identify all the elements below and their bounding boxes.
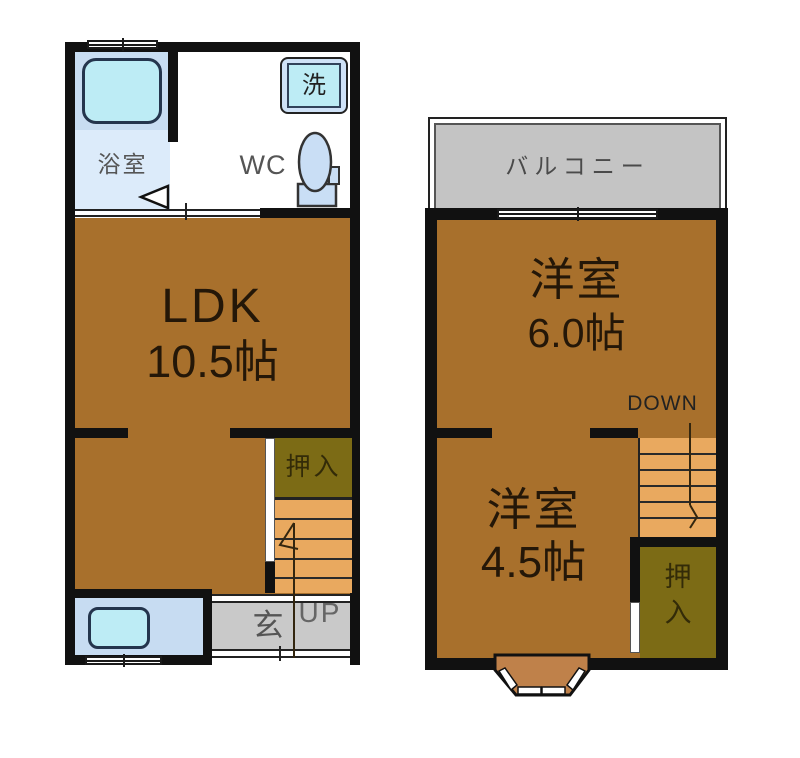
floor2-stub-left — [425, 428, 492, 438]
balcony: バルコニー — [434, 123, 721, 210]
entry-wall-stub — [203, 589, 212, 665]
bay-window-icon — [492, 652, 592, 702]
closet-wall — [630, 547, 640, 602]
bath-wc-wall — [168, 52, 178, 142]
front-door-tick — [279, 646, 281, 661]
down-arrow-icon — [680, 421, 706, 533]
stair-bottom-stub — [630, 537, 716, 547]
stair-wall-stub — [265, 562, 275, 593]
balcony-window — [497, 209, 658, 219]
wc-ldk-wall — [260, 208, 360, 218]
entrance-label: 玄 — [248, 610, 288, 641]
floor2-closet-label-top: 押 — [665, 559, 692, 595]
closet-door-strip — [630, 602, 640, 653]
ldk-stub-left — [65, 428, 128, 438]
kitchen-top-wall — [65, 589, 212, 598]
door-tick — [185, 203, 187, 220]
room1-label: 洋室 — [437, 257, 716, 302]
bath-door-icon — [138, 184, 170, 210]
balcony-label: バルコニー — [505, 155, 650, 178]
floor2-stub-right — [590, 428, 638, 438]
room1-size-label: 6.0帖 — [437, 313, 716, 354]
ldk-size-label: 10.5帖 — [75, 339, 350, 384]
floor-plan: 浴室 洗 WC LDK 10.5帖 押入 — [0, 0, 800, 758]
room2-label: 洋室 — [437, 487, 630, 532]
ldk-label: LDK — [75, 283, 350, 331]
toilet-icon — [296, 131, 342, 209]
washer-label: 洗 — [302, 74, 326, 98]
up-label: UP — [292, 599, 348, 627]
stair-door-strip — [265, 438, 275, 562]
bathroom-label: 浴室 — [75, 153, 170, 176]
floor1-closet: 押入 — [275, 438, 352, 497]
kitchen-window — [85, 656, 162, 665]
ldk-stub-right — [230, 428, 360, 438]
floor2-closet: 押 入 — [640, 547, 716, 658]
wc-label: WC — [228, 152, 298, 179]
bathtub-icon — [82, 58, 162, 124]
washing-machine-icon: 洗 — [287, 63, 341, 108]
sink-icon — [88, 607, 150, 649]
bath-sliding-door — [75, 209, 260, 217]
down-label: DOWN — [615, 393, 710, 414]
room2-size-label: 4.5帖 — [437, 541, 630, 585]
floor2-closet-label-bottom: 入 — [665, 595, 692, 631]
bathroom-window — [87, 40, 158, 49]
floor1-closet-label: 押入 — [285, 455, 341, 480]
